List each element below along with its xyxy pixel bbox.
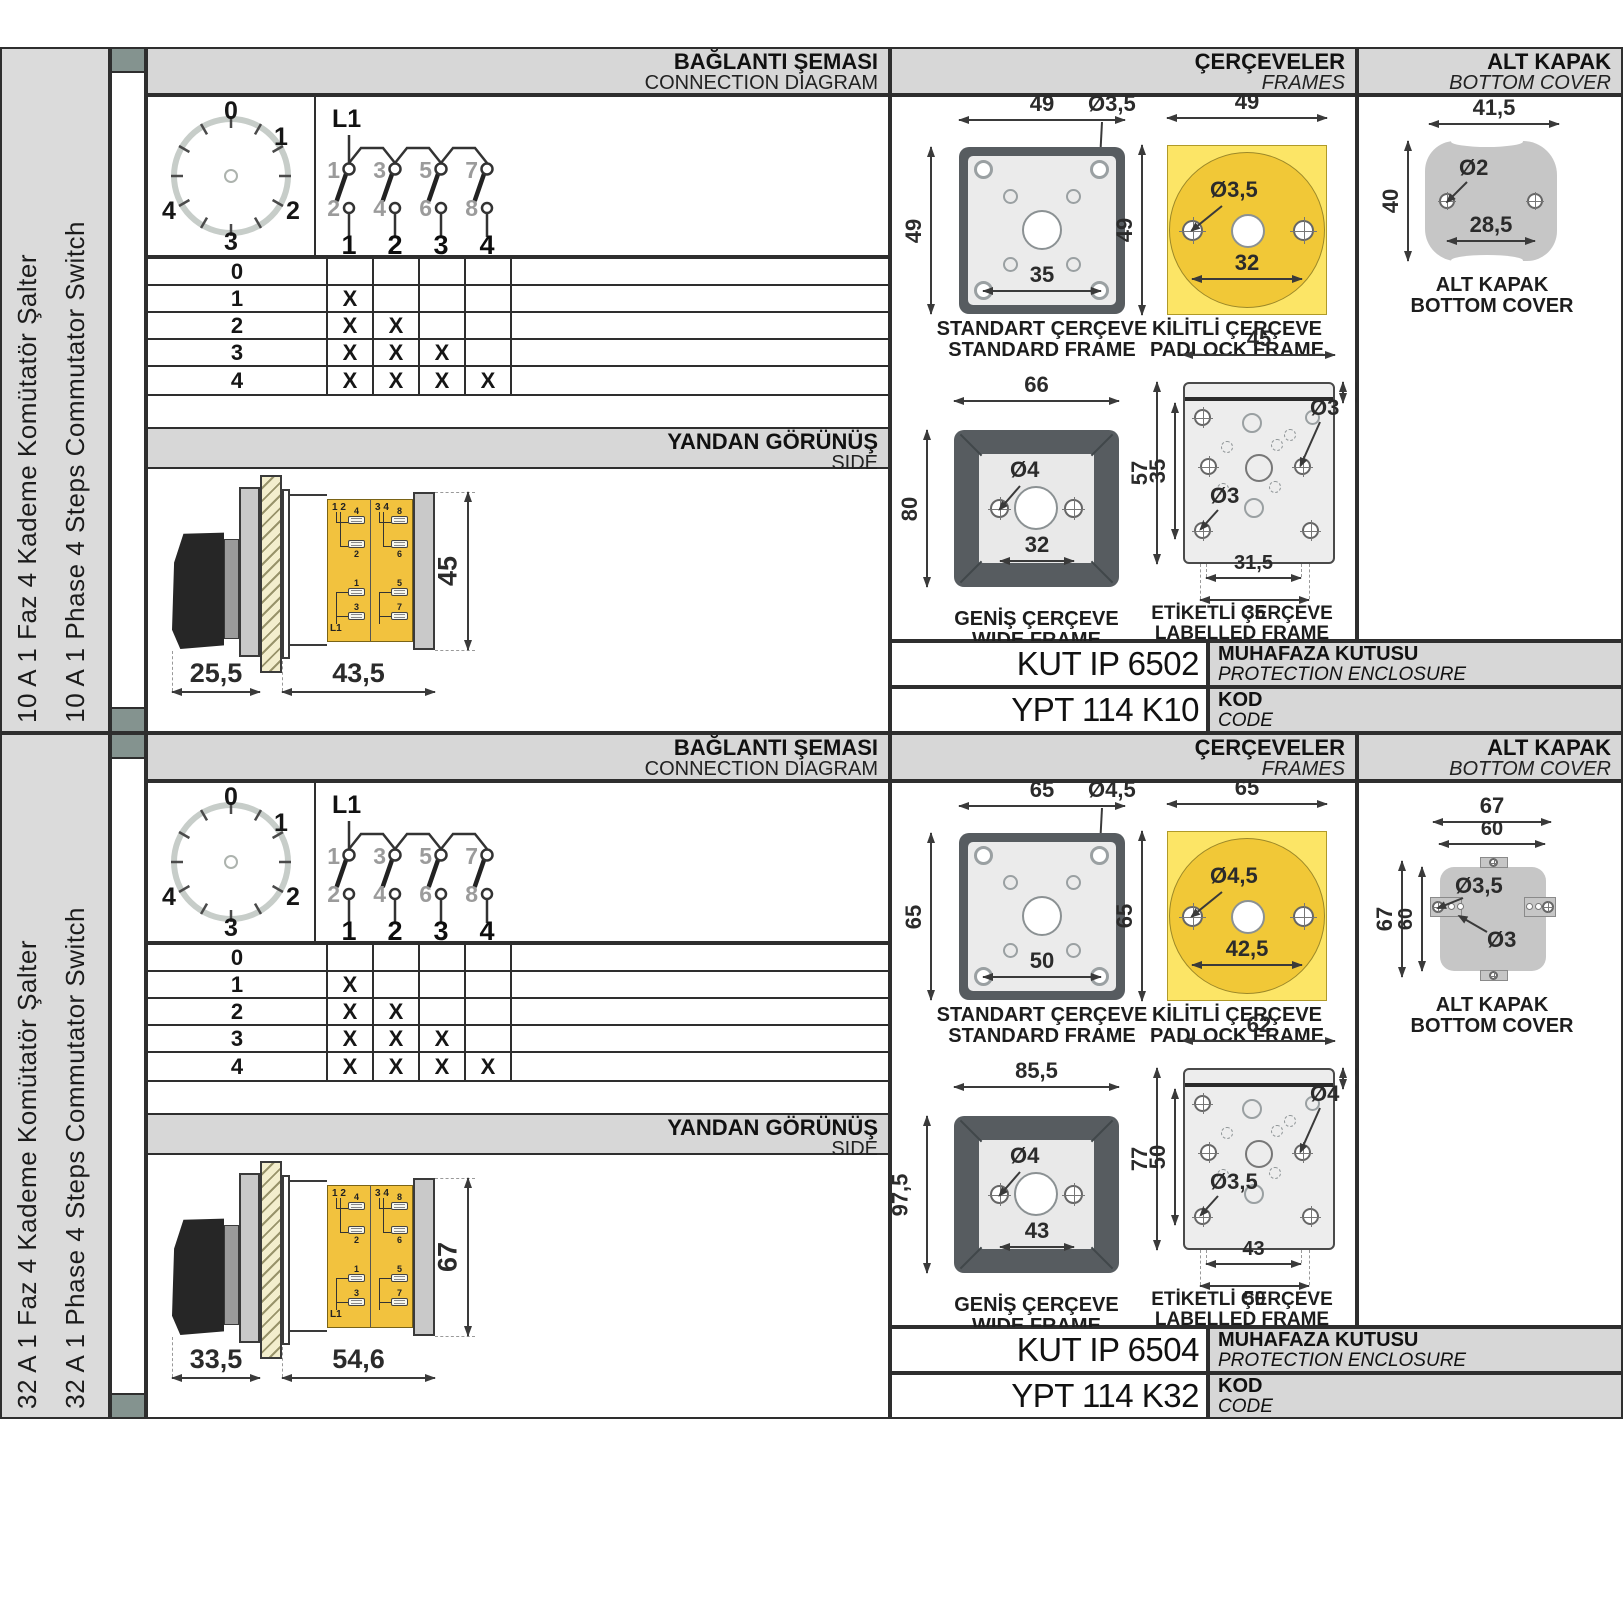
small-hole <box>1535 903 1542 910</box>
frames-header: ÇERÇEVELER FRAMES <box>890 733 1357 781</box>
terminal-icon <box>348 612 365 620</box>
table-cell: X <box>420 367 466 394</box>
handle-shaft <box>224 539 239 639</box>
pad-dim-height: 49 <box>1141 145 1143 315</box>
bottom-cover-caption: ALT KAPAK BOTTOM COVER <box>1392 995 1592 1037</box>
frames-header-en: FRAMES <box>902 73 1345 93</box>
small-hole <box>1269 1167 1281 1179</box>
table-cell: X <box>328 999 374 1026</box>
switch-4: 4 <box>479 916 494 941</box>
dim-label: 65 <box>903 904 925 928</box>
dial-pos-0: 0 <box>224 97 238 125</box>
connection-header-en: CONNECTION DIAGRAM <box>158 73 878 93</box>
frames-header-tr: ÇERÇEVELER <box>902 50 1345 73</box>
switching-table: 0 1X 2XX 3XXX 4XXXX <box>146 943 890 1082</box>
dim-label: 85,5 <box>1015 1060 1058 1082</box>
caption-tr: KİLİTLİ ÇERÇEVE <box>1127 319 1347 340</box>
terminal-label: 8 <box>397 1193 402 1202</box>
dial-pos-2: 2 <box>286 197 300 225</box>
bc-dim-height-inner: 60 <box>1421 867 1423 971</box>
terminal-icon <box>391 516 408 524</box>
dim-label: 42,5 <box>1226 938 1269 960</box>
switching-table: 0 1X 2XX 3XXX 4XXXX <box>146 257 890 396</box>
center-hole <box>1245 1140 1273 1168</box>
small-hole <box>1284 1115 1296 1127</box>
table-row-label: 1 <box>148 972 328 999</box>
connection-header-tr: BAĞLANTI ŞEMASI <box>158 736 878 759</box>
center-hole <box>1014 1172 1058 1216</box>
tab-hole <box>1489 971 1498 980</box>
frames-panel: 65 Ø4,5 65 50 STANDART ÇERÇEVE STANDARD … <box>890 781 1357 1327</box>
dim-label: 45 <box>1247 328 1271 350</box>
product-section: 32 A 1 Faz 4 Kademe Komütatör Şalter 32 … <box>0 733 1623 1419</box>
code-label-tr: KOD <box>1218 689 1613 711</box>
dim-label: 62 <box>1247 1014 1271 1036</box>
small-hole <box>1066 189 1081 204</box>
enclosure-label-tr: MUHAFAZA KUTUSU <box>1218 1329 1613 1351</box>
block-divider <box>370 500 371 641</box>
labelled-frame-caption: ETİKETLİ ÇERÇEVE LABELLED FRAME <box>1132 604 1352 644</box>
table-row-label: 2 <box>148 313 328 340</box>
table-cell <box>466 999 512 1026</box>
sidebar: 10 A 1 Faz 4 Kademe Komütatör Şalter 10 … <box>0 47 110 733</box>
binder-strip <box>110 733 146 1419</box>
wide-dim-width: 66 <box>954 400 1119 402</box>
contact-1: 1 <box>327 157 340 183</box>
small-hole <box>1221 441 1233 453</box>
dim-label: 65 <box>1114 904 1136 928</box>
contact-8: 8 <box>465 881 478 907</box>
table-cell: X <box>328 1026 374 1053</box>
wire <box>379 1302 391 1310</box>
switch-2: 2 <box>387 916 402 941</box>
dim-label: 65 <box>1235 777 1259 799</box>
lab-dim-inner: 50 <box>1174 1089 1176 1225</box>
l1-terminal-label: L1 <box>330 624 342 634</box>
table-cell <box>466 259 512 286</box>
dim-label: 33,5 <box>190 1346 243 1373</box>
pad-dim-height: 65 <box>1141 831 1143 1001</box>
bottom-cover-header-tr: ALT KAPAK <box>1369 50 1611 73</box>
labelled-frame-caption: ETİKETLİ ÇERÇEVE LABELLED FRAME <box>1132 1290 1352 1330</box>
bevel-line <box>1091 1120 1114 1143</box>
switch-handle <box>172 529 224 649</box>
wide-frame-drawing <box>954 1116 1119 1273</box>
small-hole <box>1003 943 1018 958</box>
contact-schematic: L1 1 3 5 7 2 4 6 8 1 2 3 4 <box>316 783 886 941</box>
mounting-panel <box>260 1161 282 1359</box>
terminal-icon <box>348 588 365 596</box>
dim-label: 60 <box>1481 819 1503 839</box>
spacer <box>282 489 290 659</box>
side-view-drawing: 1 2 3 4 4 2 1 3 8 6 5 7 L1 <box>146 469 890 731</box>
dim-label: 35 <box>1147 459 1169 483</box>
code-label-tr: KOD <box>1218 1375 1613 1397</box>
small-hole <box>1221 1127 1233 1139</box>
bottom-cover-header: ALT KAPAK BOTTOM COVER <box>1357 733 1623 781</box>
terminal-block: 1 2 3 4 4 2 1 3 8 6 5 7 L1 <box>327 1185 413 1328</box>
wire <box>379 592 391 618</box>
dim-label: 50 <box>1147 1145 1169 1169</box>
table-cell <box>420 999 466 1026</box>
table-cell <box>420 313 466 340</box>
dial-pos-1: 1 <box>274 809 288 837</box>
side-header-tr: YANDAN GÖRÜNÜŞ <box>158 430 878 453</box>
small-hole <box>1003 875 1018 890</box>
table-cell: X <box>374 313 420 340</box>
dim-label: 45 <box>434 556 461 586</box>
table-cell-empty <box>512 1053 888 1080</box>
terminal-icon <box>391 1202 408 1210</box>
terminal-label: 5 <box>397 1265 402 1274</box>
enclosure-label: MUHAFAZA KUTUSU PROTECTION ENCLOSURE <box>1208 1327 1623 1373</box>
caption-tr: KİLİTLİ ÇERÇEVE <box>1127 1005 1347 1026</box>
dial-pos-4: 4 <box>162 197 176 225</box>
block-divider <box>370 1186 371 1327</box>
bevel-line <box>960 561 983 584</box>
table-cell <box>466 945 512 972</box>
extension-line <box>1309 1250 1310 1285</box>
table-cell: X <box>374 1026 420 1053</box>
dim-label: 67 <box>1374 907 1396 931</box>
fixing-hole <box>1064 1185 1083 1204</box>
frames-header-tr: ÇERÇEVELER <box>902 736 1345 759</box>
table-cell <box>374 972 420 999</box>
product-title-turkish: 10 A 1 Faz 4 Kademe Komütatör Şalter <box>12 254 43 723</box>
fixing-hole <box>1293 220 1314 241</box>
lab-dim-span-inner: 31,5 <box>1206 577 1301 579</box>
contact-schematic: L1 1 3 5 7 2 4 6 8 1 2 3 4 <box>316 97 886 255</box>
contact-2: 2 <box>327 195 340 221</box>
code-label: KOD CODE <box>1208 1373 1623 1419</box>
dim-label: 31,5 <box>1234 553 1273 573</box>
switch-4: 4 <box>479 230 494 255</box>
table-cell: X <box>466 367 512 394</box>
fixing-hole <box>1302 522 1319 539</box>
contact-5: 5 <box>419 843 432 869</box>
lab-dim-span-outer: 35 <box>1200 599 1309 601</box>
wire <box>336 592 348 618</box>
schematic-box: L1 1 3 5 7 2 4 6 8 1 2 3 4 <box>316 781 890 943</box>
connection-header: BAĞLANTI ŞEMASI CONNECTION DIAGRAM <box>146 733 890 781</box>
standard-frame-caption: STANDART ÇERÇEVE STANDARD FRAME <box>932 1005 1152 1047</box>
small-hole <box>1003 257 1018 272</box>
l1-label: L1 <box>332 105 361 133</box>
terminal-label: 3 <box>354 1289 359 1298</box>
dim-label: 54,6 <box>332 1346 385 1373</box>
contact-7: 7 <box>465 843 478 869</box>
dim-height: 67 <box>467 1178 469 1336</box>
switch-3: 3 <box>433 916 448 941</box>
switch-body <box>290 1180 327 1332</box>
side-view-header: YANDAN GÖRÜNÜŞ SIDE <box>146 427 890 469</box>
small-hole <box>1003 189 1018 204</box>
table-row-label: 0 <box>148 945 328 972</box>
bottom-cover-header: ALT KAPAK BOTTOM COVER <box>1357 47 1623 95</box>
terminal-label: 3 <box>354 603 359 612</box>
fixing-hole <box>1064 499 1083 518</box>
caption-en: STANDARD FRAME <box>932 340 1152 361</box>
dim-label: 49 <box>1114 218 1136 242</box>
table-cell: X <box>466 1053 512 1080</box>
caption-tr: GENİŞ ÇERÇEVE <box>924 1295 1149 1316</box>
lab-dim-strip: 6,5 <box>1342 382 1344 403</box>
fixing-hole <box>1527 193 1543 209</box>
tab-hole <box>1489 858 1498 867</box>
caption-en: STANDARD FRAME <box>932 1026 1152 1047</box>
frames-panel: 49 Ø3,5 49 35 STANDART ÇERÇEVE STANDARD … <box>890 95 1357 641</box>
table-cell <box>328 259 374 286</box>
lab-dim-inner: 35 <box>1174 403 1176 539</box>
terminal-label: 4 <box>354 507 359 516</box>
corner-hole <box>1090 846 1109 865</box>
center-hole <box>1014 486 1058 530</box>
dial-pos-4: 4 <box>162 883 176 911</box>
table-cell <box>374 945 420 972</box>
terminal-icon <box>348 1202 365 1210</box>
dim-label: 32 <box>1025 534 1049 556</box>
lab-dim-width: 45 <box>1183 354 1335 356</box>
bottom-cover-header-tr: ALT KAPAK <box>1369 736 1611 759</box>
dim-label: 80 <box>899 496 921 520</box>
table-row-label: 0 <box>148 259 328 286</box>
dim-depth-body: 54,6 <box>282 1377 435 1379</box>
bottom-cover-header-en: BOTTOM COVER <box>1369 73 1611 93</box>
enclosure-label: MUHAFAZA KUTUSU PROTECTION ENCLOSURE <box>1208 641 1623 687</box>
enclosure-code: KUT IP 6504 <box>890 1327 1208 1373</box>
terminal-label: 1 <box>354 579 359 588</box>
caption-tr: ALT KAPAK <box>1392 275 1592 296</box>
small-hole <box>1066 875 1081 890</box>
table-cell: X <box>328 313 374 340</box>
dial-pos-0: 0 <box>224 783 238 811</box>
center-hole <box>1245 454 1273 482</box>
bc-hole-label: Ø2 <box>1459 157 1488 179</box>
table-cell <box>466 972 512 999</box>
bottom-cover-caption: ALT KAPAK BOTTOM COVER <box>1392 275 1592 317</box>
terminal-icon <box>391 612 408 620</box>
dial-pos-1: 1 <box>274 123 288 151</box>
table-row-label: 4 <box>148 1053 328 1080</box>
table-row-label: 3 <box>148 340 328 367</box>
code-label-en: CODE <box>1218 711 1613 730</box>
small-hole <box>1271 439 1283 451</box>
side-view-drawing: 1 2 3 4 4 2 1 3 8 6 5 7 L1 <box>146 1155 890 1417</box>
extension-line <box>172 1337 173 1377</box>
caption-tr: STANDART ÇERÇEVE <box>932 319 1152 340</box>
tab-hole <box>1542 901 1554 913</box>
standard-frame-caption: STANDART ÇERÇEVE STANDARD FRAME <box>932 319 1152 361</box>
table-row-label: 2 <box>148 999 328 1026</box>
table-cell <box>374 259 420 286</box>
mounting-panel <box>260 475 282 673</box>
wire <box>340 1198 348 1233</box>
lab-dim-strip: 9,5 <box>1342 1068 1344 1089</box>
std-dim-height: 65 <box>930 833 932 1000</box>
terminal-label: 6 <box>397 550 402 559</box>
bc-hole-tab-label: Ø3,5 <box>1455 875 1503 897</box>
table-row-label: 4 <box>148 367 328 394</box>
lab-hole-bottom-label: Ø3 <box>1210 485 1239 507</box>
table-cell-empty <box>512 340 888 367</box>
dim-height: 45 <box>467 492 469 650</box>
frames-header: ÇERÇEVELER FRAMES <box>890 47 1357 95</box>
lab-hole-top-label: Ø4 <box>1310 1083 1339 1105</box>
caption-en: PADLOCK FRAME <box>1127 1026 1347 1047</box>
side-view-header: YANDAN GÖRÜNÜŞ SIDE <box>146 1113 890 1155</box>
table-cell <box>374 286 420 313</box>
small-hole <box>1242 413 1262 433</box>
dial-pos-3: 3 <box>224 228 238 255</box>
switch-1: 1 <box>341 230 356 255</box>
dim-label: 43,5 <box>332 660 385 687</box>
connection-header-en: CONNECTION DIAGRAM <box>158 759 878 779</box>
caption-en: PADLOCK FRAME <box>1127 340 1347 361</box>
extension-line <box>282 661 283 691</box>
wide-dim-span: 43 <box>1000 1246 1074 1248</box>
table-cell: X <box>328 367 374 394</box>
table-cell <box>466 313 512 340</box>
dim-label: 66 <box>1024 374 1048 396</box>
terminal-icon <box>391 540 408 548</box>
wire <box>340 512 348 547</box>
wire <box>336 1278 348 1304</box>
std-dim-span: 50 <box>983 976 1101 978</box>
dim-label: 49 <box>903 218 925 242</box>
table-cell-empty <box>512 313 888 340</box>
enclosure-code: KUT IP 6502 <box>890 641 1208 687</box>
switch-handle <box>172 1215 224 1335</box>
corner-hole <box>974 160 993 179</box>
pad-dim-span: 32 <box>1192 278 1302 280</box>
table-cell: X <box>420 1026 466 1053</box>
switch-3: 3 <box>433 230 448 255</box>
table-cell <box>420 972 466 999</box>
dim-label: 40 <box>1380 189 1402 213</box>
table-cell <box>466 340 512 367</box>
caption-en: BOTTOM COVER <box>1392 1016 1592 1037</box>
contact-3: 3 <box>373 843 386 869</box>
pad-hole-label: Ø4,5 <box>1210 865 1258 887</box>
lab-dim-span-inner: 43 <box>1206 1263 1301 1265</box>
dim-label: 35 <box>1030 264 1054 286</box>
lab-hole-top-label: Ø3 <box>1310 397 1339 419</box>
terminal-icon <box>348 1298 365 1306</box>
dim-depth-front: 25,5 <box>172 691 260 693</box>
table-row-label: 1 <box>148 286 328 313</box>
small-hole <box>1457 903 1464 910</box>
extension-line <box>1309 564 1310 599</box>
dim-label: 65 <box>1030 779 1054 801</box>
table-cell: X <box>420 1053 466 1080</box>
switch-1: 1 <box>341 916 356 941</box>
small-hole <box>1066 943 1081 958</box>
code-label: KOD CODE <box>1208 687 1623 733</box>
dim-label: 67 <box>434 1242 461 1272</box>
table-cell: X <box>328 1053 374 1080</box>
std-dim-height: 49 <box>930 147 932 314</box>
position-dial: 0 1 2 3 4 <box>148 783 314 941</box>
table-cell: X <box>328 340 374 367</box>
center-hole <box>1022 210 1062 250</box>
dim-depth-body: 43,5 <box>282 691 435 693</box>
caption-tr: ALT KAPAK <box>1392 995 1592 1016</box>
sidebar: 32 A 1 Faz 4 Kademe Komütatör Şalter 32 … <box>0 733 110 1419</box>
caption-en: BOTTOM COVER <box>1392 296 1592 317</box>
fixing-hole <box>1200 1144 1217 1161</box>
fixing-hole <box>1194 1095 1211 1112</box>
contact-8: 8 <box>465 195 478 221</box>
table-cell <box>420 259 466 286</box>
table-cell <box>420 945 466 972</box>
table-cell-empty <box>512 286 888 313</box>
contact-3: 3 <box>373 157 386 183</box>
std-hole-label: Ø3,5 <box>1088 93 1136 115</box>
binder-mark <box>110 733 146 759</box>
table-cell: X <box>374 1053 420 1080</box>
dial-box: 0 1 2 3 4 <box>146 781 316 943</box>
enclosure-label-en: PROTECTION ENCLOSURE <box>1218 665 1613 684</box>
lab-dim-width: 62 <box>1183 1040 1335 1042</box>
product-title-english: 10 A 1 Phase 4 Steps Commutator Switch <box>60 221 91 723</box>
wire <box>383 1198 391 1233</box>
dim-label: 49 <box>1030 93 1054 115</box>
contact-6: 6 <box>419 881 432 907</box>
wide-dim-height: 80 <box>926 430 928 587</box>
dim-depth-front: 33,5 <box>172 1377 260 1379</box>
product-code: YPT 114 K32 <box>890 1373 1208 1419</box>
terminal-label: 7 <box>397 1289 402 1298</box>
contact-7: 7 <box>465 157 478 183</box>
contact-5: 5 <box>419 157 432 183</box>
frames-header-en: FRAMES <box>902 759 1345 779</box>
center-hole <box>1231 900 1265 934</box>
dim-label: 43 <box>1242 1239 1264 1259</box>
bottom-cover-panel: 41,5 40 Ø2 28,5 ALT KAPAK BOTTOM COVER <box>1357 95 1623 641</box>
enclosure-label-en: PROTECTION ENCLOSURE <box>1218 1351 1613 1370</box>
table-cell-empty <box>512 259 888 286</box>
contact-2: 2 <box>327 881 340 907</box>
product-title-english: 32 A 1 Phase 4 Steps Commutator Switch <box>60 907 91 1409</box>
table-cell-empty <box>512 1026 888 1053</box>
wide-hole-label: Ø4 <box>1010 1145 1039 1167</box>
extension-line <box>1200 564 1201 599</box>
bevel-line <box>960 434 983 457</box>
extension-line <box>1200 1250 1201 1285</box>
small-hole <box>1242 1099 1262 1119</box>
bottom-cover-header-en: BOTTOM COVER <box>1369 759 1611 779</box>
dim-label: 67 <box>1480 795 1504 817</box>
terminal-icon <box>391 1298 408 1306</box>
terminal-label: 6 <box>397 1236 402 1245</box>
dial-pos-3: 3 <box>224 914 238 941</box>
terminal-block: 1 2 3 4 4 2 1 3 8 6 5 7 L1 <box>327 499 413 642</box>
table-cell-empty <box>512 945 888 972</box>
terminal-label: 2 <box>354 550 359 559</box>
wide-frame-drawing <box>954 430 1119 587</box>
caption-tr: STANDART ÇERÇEVE <box>932 1005 1152 1026</box>
center-hole <box>1231 214 1265 248</box>
switch-body <box>290 494 327 646</box>
table-cell: X <box>328 972 374 999</box>
bevel-line <box>1091 1247 1114 1270</box>
dim-label: 97,5 <box>890 1173 912 1216</box>
wire <box>379 616 391 624</box>
wire <box>379 1278 391 1304</box>
terminal-icon <box>391 588 408 596</box>
switch-2: 2 <box>387 230 402 255</box>
binder-mark <box>110 47 146 73</box>
